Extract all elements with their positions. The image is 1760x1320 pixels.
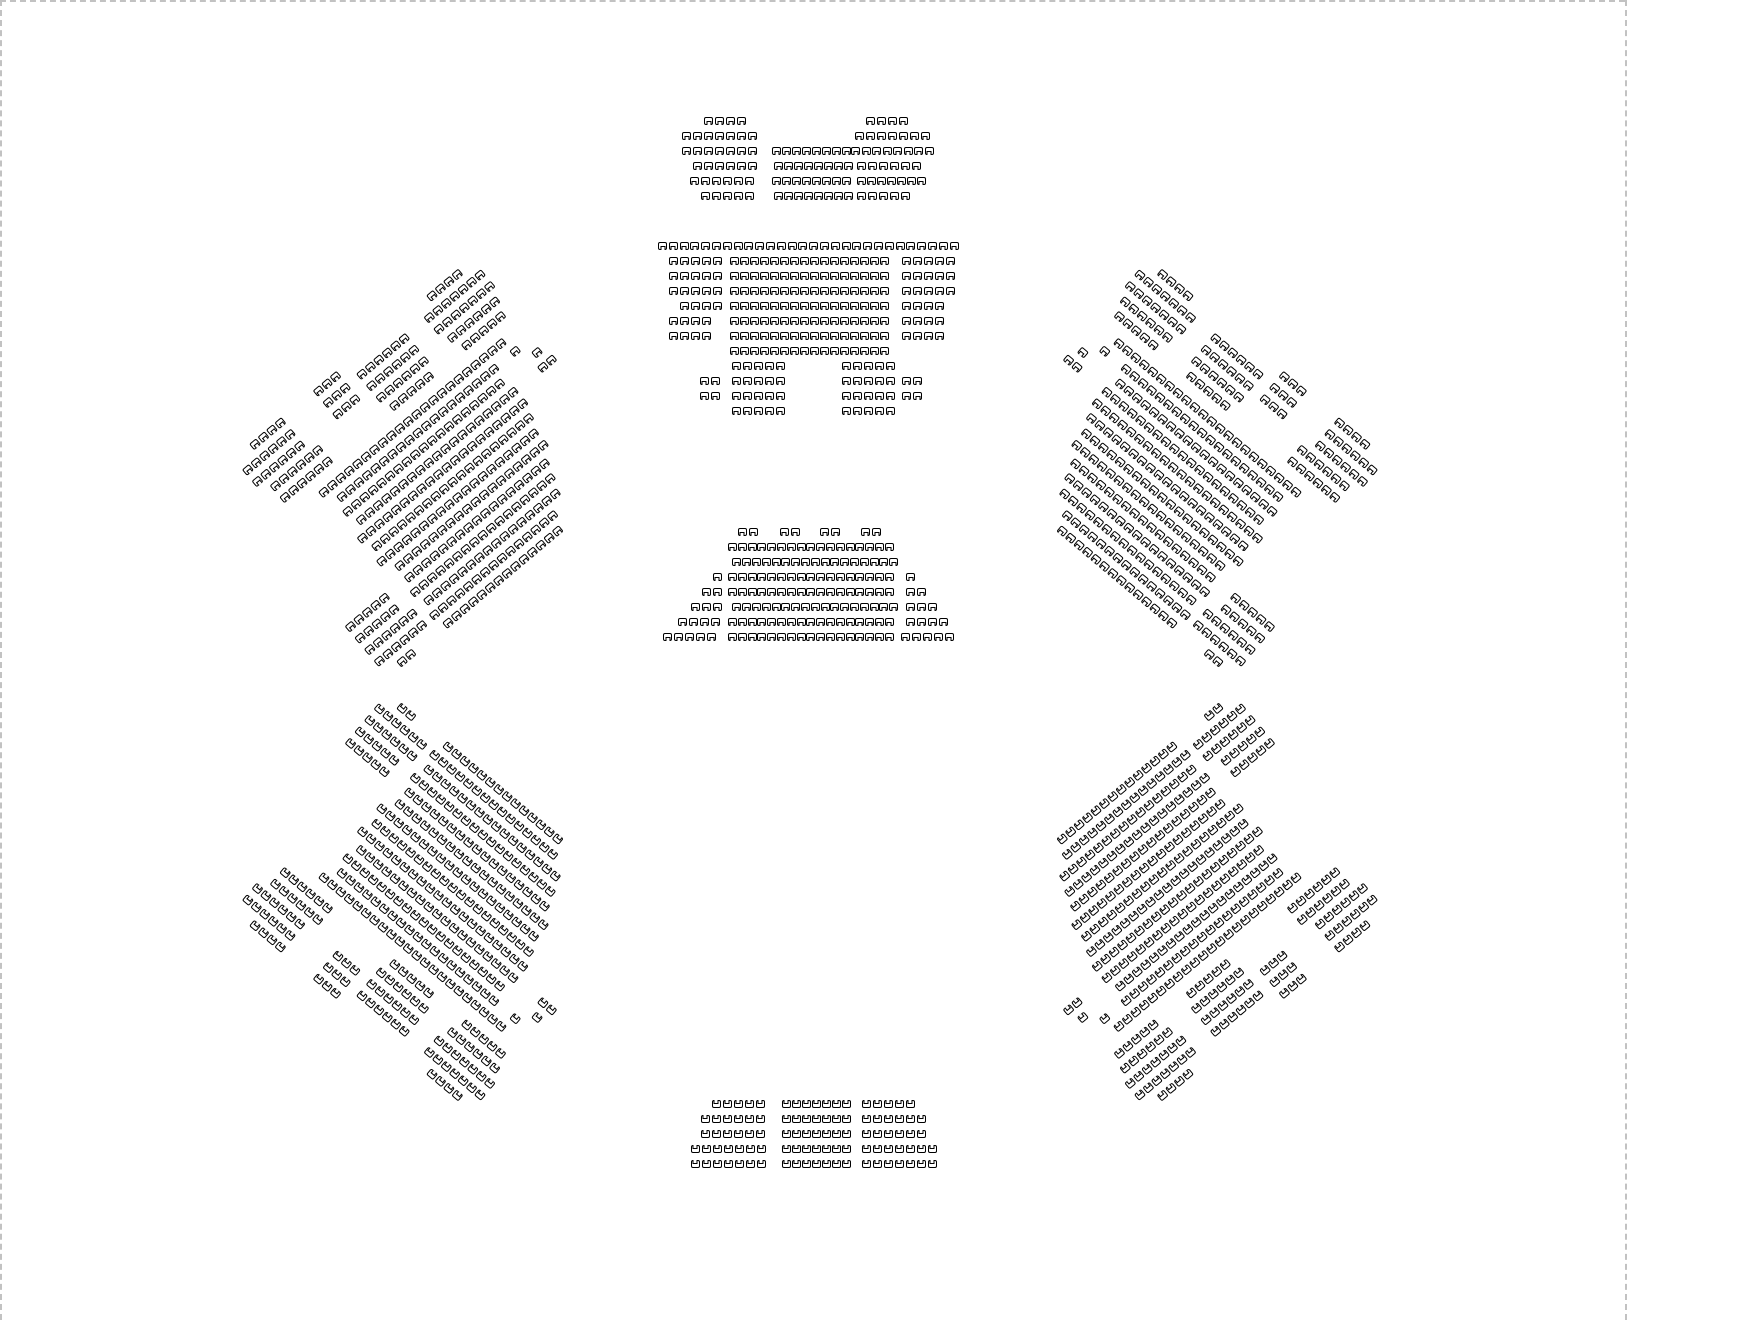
seat[interactable] [691,302,700,310]
seat[interactable] [822,1160,831,1168]
seat[interactable] [906,588,915,596]
seat[interactable] [723,242,732,250]
seat[interactable] [760,332,769,340]
seat[interactable] [889,603,898,611]
seat[interactable] [924,332,933,340]
seat[interactable] [946,272,955,280]
seat[interactable] [762,558,771,566]
seat[interactable] [924,287,933,295]
seat[interactable] [782,1100,791,1108]
seat[interactable] [752,558,761,566]
seat[interactable] [1148,339,1160,351]
seat[interactable] [451,1089,463,1101]
seat[interactable] [862,1115,871,1123]
seat[interactable] [489,1062,501,1074]
seat[interactable] [790,272,799,280]
seat[interactable] [433,323,445,335]
seat[interactable] [850,257,859,265]
seat[interactable] [738,528,747,536]
seat[interactable] [870,272,879,280]
seat[interactable] [756,1115,765,1123]
seat[interactable] [780,347,789,355]
seat[interactable] [742,603,751,611]
seat[interactable] [879,558,888,566]
seat[interactable] [700,618,709,626]
seat[interactable] [712,242,721,250]
seat[interactable] [730,272,739,280]
seat[interactable] [886,392,895,400]
seat[interactable] [754,362,763,370]
seat[interactable] [728,618,737,626]
seat[interactable] [749,528,758,536]
seat[interactable] [842,1115,851,1123]
seat[interactable] [528,930,540,942]
seat[interactable] [723,1130,732,1138]
seat[interactable] [730,347,739,355]
seat[interactable] [1077,347,1089,359]
seat[interactable] [870,257,879,265]
seat[interactable] [840,332,849,340]
seat[interactable] [860,332,869,340]
seat[interactable] [917,177,926,185]
seat[interactable] [865,588,874,596]
seat[interactable] [713,287,722,295]
seat[interactable] [658,242,667,250]
seat[interactable] [1233,391,1245,403]
seat[interactable] [820,257,829,265]
seat[interactable] [732,407,741,415]
seat[interactable] [820,302,829,310]
seat[interactable] [870,603,879,611]
seat[interactable] [939,618,948,626]
seat[interactable] [791,528,800,536]
seat[interactable] [690,242,699,250]
seat[interactable] [544,885,556,897]
seat[interactable] [902,317,911,325]
seat[interactable] [1243,978,1255,990]
seat[interactable] [517,960,529,972]
seat[interactable] [910,132,919,140]
seat[interactable] [883,147,892,155]
seat[interactable] [738,618,747,626]
seat[interactable] [842,242,851,250]
seat[interactable] [702,302,711,310]
seat[interactable] [522,945,534,957]
seat[interactable] [1214,560,1226,572]
seat[interactable] [830,317,839,325]
seat[interactable] [735,1145,744,1153]
seat[interactable] [851,147,860,155]
seat[interactable] [790,287,799,295]
seat[interactable] [691,603,700,611]
seat[interactable] [800,272,809,280]
seat[interactable] [538,900,550,912]
seat[interactable] [860,317,869,325]
seat[interactable] [743,392,752,400]
seat[interactable] [885,543,894,551]
seat[interactable] [895,1145,904,1153]
seat[interactable] [777,242,786,250]
seat[interactable] [760,347,769,355]
seat[interactable] [782,1115,791,1123]
seat[interactable] [802,1100,811,1108]
seat[interactable] [750,272,759,280]
seat[interactable] [691,317,700,325]
seat[interactable] [914,147,923,155]
seat[interactable] [868,162,877,170]
seat[interactable] [1071,996,1083,1008]
seat[interactable] [724,1145,733,1153]
seat[interactable] [704,132,713,140]
seat[interactable] [329,987,341,999]
seat[interactable] [493,980,505,992]
seat[interactable] [715,117,724,125]
seat[interactable] [797,618,806,626]
seat[interactable] [693,162,702,170]
seat[interactable] [831,242,840,250]
seat[interactable] [873,1145,882,1153]
seat[interactable] [1238,818,1250,830]
seat[interactable] [713,257,722,265]
seat[interactable] [723,1100,732,1108]
seat[interactable] [712,1100,721,1108]
seat[interactable] [711,377,720,385]
seat[interactable] [824,192,833,200]
seat[interactable] [842,1100,851,1108]
seat[interactable] [728,588,737,596]
seat[interactable] [879,192,888,200]
seat[interactable] [398,1025,410,1037]
seat[interactable] [840,603,849,611]
seat[interactable] [1199,772,1211,784]
seat[interactable] [885,588,894,596]
seat[interactable] [913,317,922,325]
seat[interactable] [743,377,752,385]
seat[interactable] [792,147,801,155]
seat[interactable] [726,147,735,155]
seat[interactable] [875,618,884,626]
seat[interactable] [880,272,889,280]
seat[interactable] [746,1160,755,1168]
seat[interactable] [704,162,713,170]
seat[interactable] [806,633,815,641]
seat[interactable] [798,242,807,250]
seat[interactable] [902,287,911,295]
seat[interactable] [422,987,434,999]
seat[interactable] [787,543,796,551]
seat[interactable] [704,117,713,125]
seat[interactable] [844,192,853,200]
seat[interactable] [840,302,849,310]
seat[interactable] [757,618,766,626]
seat[interactable] [864,377,873,385]
seat[interactable] [913,332,922,340]
seat[interactable] [935,257,944,265]
seat[interactable] [765,407,774,415]
seat[interactable] [737,147,746,155]
seat[interactable] [744,242,753,250]
seat[interactable] [826,588,835,596]
seat[interactable] [1272,491,1284,503]
seat[interactable] [730,257,739,265]
seat[interactable] [757,573,766,581]
seat[interactable] [935,317,944,325]
seat[interactable] [816,633,825,641]
seat[interactable] [822,1130,831,1138]
seat[interactable] [802,147,811,155]
seat[interactable] [700,377,709,385]
seat[interactable] [370,540,382,552]
seat[interactable] [700,392,709,400]
seat[interactable] [1254,632,1266,644]
seat[interactable] [726,162,735,170]
seat[interactable] [917,1145,926,1153]
seat[interactable] [378,766,390,778]
seat[interactable] [865,633,874,641]
seat[interactable] [738,573,747,581]
seat[interactable] [860,603,869,611]
seat[interactable] [820,528,829,536]
seat[interactable] [812,1100,821,1108]
seat[interactable] [531,1012,543,1024]
seat[interactable] [870,287,879,295]
seat[interactable] [875,362,884,370]
seat[interactable] [726,132,735,140]
seat[interactable] [1233,967,1245,979]
seat[interactable] [782,1160,791,1168]
seat[interactable] [820,332,829,340]
seat[interactable] [812,1130,821,1138]
seat[interactable] [895,1130,904,1138]
seat[interactable] [1366,464,1378,476]
seat[interactable] [766,242,775,250]
seat[interactable] [691,1160,700,1168]
seat[interactable] [781,558,790,566]
seat[interactable] [792,1130,801,1138]
seat[interactable] [483,1077,495,1089]
seat[interactable] [902,392,911,400]
seat[interactable] [810,317,819,325]
seat[interactable] [772,177,781,185]
seat[interactable] [375,391,387,403]
seat[interactable] [748,147,757,155]
seat[interactable] [1253,514,1265,526]
seat[interactable] [1359,438,1371,450]
seat[interactable] [901,162,910,170]
seat[interactable] [509,346,521,358]
seat[interactable] [734,1130,743,1138]
seat[interactable] [669,287,678,295]
seat[interactable] [902,257,911,265]
seat[interactable] [1266,852,1278,864]
seat[interactable] [928,603,937,611]
seat[interactable] [924,257,933,265]
seat[interactable] [924,317,933,325]
seat[interactable] [669,242,678,250]
seat[interactable] [312,385,324,397]
seat[interactable] [860,272,869,280]
seat[interactable] [495,1020,507,1032]
seat[interactable] [552,833,564,845]
seat[interactable] [850,302,859,310]
seat[interactable] [765,377,774,385]
seat[interactable] [832,177,841,185]
seat[interactable] [1266,506,1278,518]
seat[interactable] [691,332,700,340]
seat[interactable] [713,588,722,596]
seat[interactable] [742,558,751,566]
seat[interactable] [875,543,884,551]
seat[interactable] [862,147,871,155]
seat[interactable] [1071,362,1083,374]
seat[interactable] [715,147,724,155]
seat[interactable] [790,317,799,325]
seat[interactable] [875,407,884,415]
seat[interactable] [832,1115,841,1123]
seat[interactable] [1219,399,1231,411]
seat[interactable] [860,257,869,265]
seat[interactable] [680,332,689,340]
seat[interactable] [820,242,829,250]
seat[interactable] [781,603,790,611]
seat[interactable] [810,272,819,280]
seat[interactable] [707,633,716,641]
seat[interactable] [780,257,789,265]
seat[interactable] [704,147,713,155]
seat[interactable] [928,618,937,626]
seat[interactable] [913,392,922,400]
seat[interactable] [1238,540,1250,552]
seat[interactable] [853,377,862,385]
seat[interactable] [546,848,558,860]
seat[interactable] [1185,594,1197,606]
seat[interactable] [404,709,416,721]
seat[interactable] [906,1130,915,1138]
seat[interactable] [797,573,806,581]
seat[interactable] [1099,346,1111,358]
seat[interactable] [423,312,435,324]
seat[interactable] [743,362,752,370]
seat[interactable] [1166,617,1178,629]
seat[interactable] [732,603,741,611]
seat[interactable] [663,633,672,641]
seat[interactable] [906,1160,915,1168]
seat[interactable] [726,117,735,125]
seat[interactable] [767,588,776,596]
seat[interactable] [713,573,722,581]
seat[interactable] [790,257,799,265]
seat[interactable] [804,192,813,200]
seat[interactable] [1182,290,1194,302]
seat[interactable] [680,272,689,280]
seat[interactable] [811,558,820,566]
seat[interactable] [902,377,911,385]
seat[interactable] [748,618,757,626]
seat[interactable] [294,918,306,930]
seat[interactable] [691,1145,700,1153]
seat[interactable] [935,272,944,280]
seat[interactable] [912,162,921,170]
seat[interactable] [842,1145,851,1153]
seat[interactable] [850,603,859,611]
seat[interactable] [861,528,870,536]
seat[interactable] [784,192,793,200]
seat[interactable] [782,177,791,185]
seat[interactable] [728,543,737,551]
seat[interactable] [945,633,954,641]
seat[interactable] [745,1130,754,1138]
seat[interactable] [840,287,849,295]
seat[interactable] [836,588,845,596]
seat[interactable] [885,633,894,641]
seat[interactable] [723,1115,732,1123]
seat[interactable] [895,1100,904,1108]
seat[interactable] [812,1160,821,1168]
seat[interactable] [830,287,839,295]
seat[interactable] [788,242,797,250]
seat[interactable] [872,528,881,536]
seat[interactable] [1099,1012,1111,1024]
seat[interactable] [846,633,855,641]
seat[interactable] [740,272,749,280]
seat[interactable] [912,633,921,641]
seat[interactable] [877,117,886,125]
seat[interactable] [732,377,741,385]
seat[interactable] [820,317,829,325]
seat[interactable] [756,1100,765,1108]
seat[interactable] [715,132,724,140]
seat[interactable] [701,1115,710,1123]
seat[interactable] [862,1145,871,1153]
seat[interactable] [899,117,908,125]
seat[interactable] [711,618,720,626]
seat[interactable] [886,407,895,415]
seat[interactable] [745,1115,754,1123]
seat[interactable] [750,332,759,340]
seat[interactable] [832,1130,841,1138]
seat[interactable] [767,618,776,626]
seat[interactable] [748,543,757,551]
seat[interactable] [770,317,779,325]
seat[interactable] [821,558,830,566]
seat[interactable] [834,162,843,170]
seat[interactable] [893,147,902,155]
seat[interactable] [682,132,691,140]
seat[interactable] [748,633,757,641]
seat[interactable] [850,287,859,295]
seat[interactable] [1252,990,1264,1002]
seat[interactable] [1180,749,1192,761]
seat[interactable] [791,558,800,566]
seat[interactable] [870,317,879,325]
seat[interactable] [866,132,875,140]
seat[interactable] [857,162,866,170]
seat[interactable] [855,573,864,581]
seat[interactable] [701,177,710,185]
seat[interactable] [810,287,819,295]
seat[interactable] [880,347,889,355]
seat[interactable] [488,995,500,1007]
seat[interactable] [884,1115,893,1123]
seat[interactable] [746,1145,755,1153]
seat[interactable] [284,930,296,942]
seat[interactable] [780,272,789,280]
seat[interactable] [760,302,769,310]
seat[interactable] [790,332,799,340]
seat[interactable] [864,407,873,415]
seat[interactable] [946,257,955,265]
seat[interactable] [806,588,815,596]
